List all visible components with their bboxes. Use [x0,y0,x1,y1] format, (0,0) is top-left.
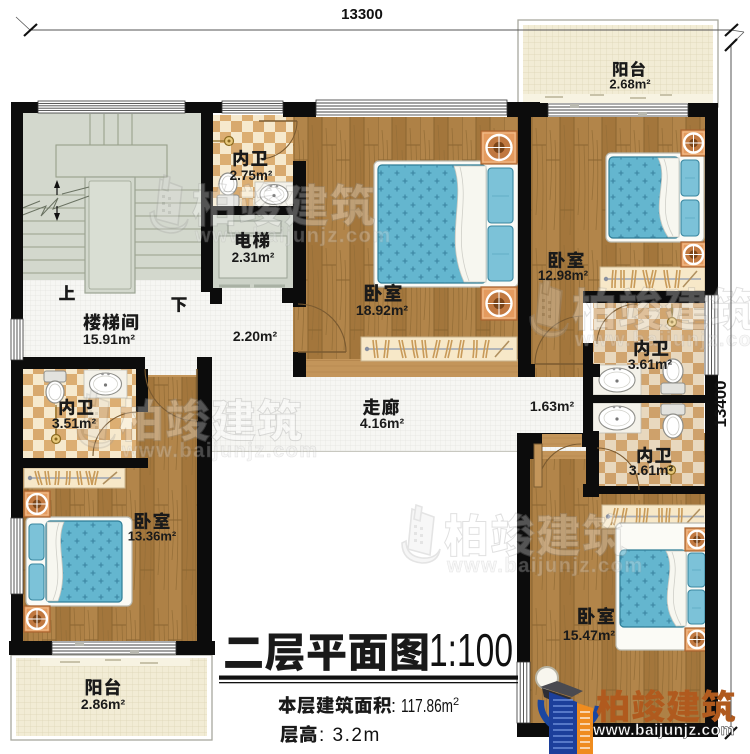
svg-text:13400: 13400 [711,380,730,427]
svg-text:13300: 13300 [341,6,383,23]
svg-text:2.31m²: 2.31m² [232,250,275,265]
svg-text:3.61m²: 3.61m² [628,356,673,372]
svg-text:2.20m²: 2.20m² [233,328,278,344]
svg-text:18.92m²: 18.92m² [356,302,408,318]
svg-text:4.16m²: 4.16m² [360,415,405,431]
svg-text:3.51m²: 3.51m² [52,415,97,431]
svg-text:15.91m²: 15.91m² [83,331,135,347]
svg-text:13.36m²: 13.36m² [128,529,177,544]
svg-text:www.baijunjz.com: www.baijunjz.com [446,555,644,577]
svg-text:2.68m²: 2.68m² [609,77,651,92]
svg-text:: 3.2m: : 3.2m [319,725,381,746]
svg-text:3.61m²: 3.61m² [629,462,674,478]
svg-text:: 117.86m2: : 117.86m2 [391,696,459,716]
svg-text:www.baijunjz.com: www.baijunjz.com [121,440,319,462]
svg-text:www.baijunjz.com: www.baijunjz.com [592,722,735,739]
svg-text:1.63m²: 1.63m² [530,398,575,414]
svg-text:www.baijunjz.com: www.baijunjz.com [574,329,750,351]
svg-text:15.47m²: 15.47m² [563,627,615,643]
svg-text:12.98m²: 12.98m² [538,268,589,283]
svg-text:2.86m²: 2.86m² [81,696,126,712]
svg-text:1:100: 1:100 [429,624,513,676]
svg-text:www.baijunjz.com: www.baijunjz.com [194,225,392,247]
svg-text:2.75m²: 2.75m² [230,168,273,183]
